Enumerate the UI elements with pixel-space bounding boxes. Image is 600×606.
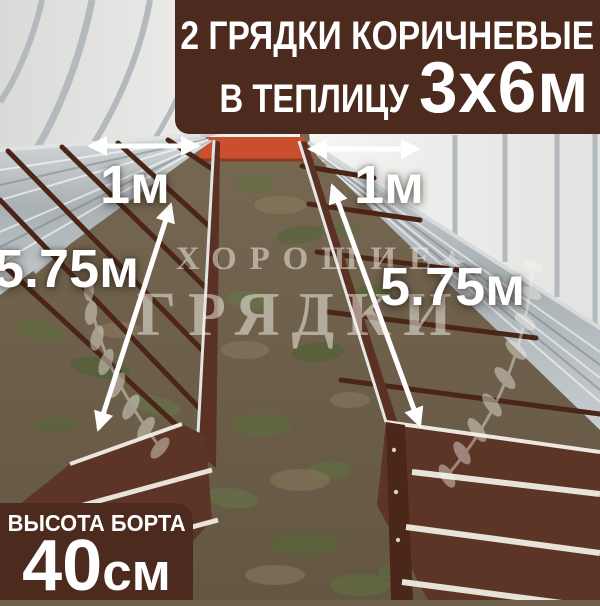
board-height-value-row: 40 см	[22, 534, 171, 603]
dimension-label-bed-length-right: 5.75м	[380, 260, 525, 314]
banner-subtitle-row: В ТЕПЛИЦУ 3х6м	[178, 54, 596, 122]
board-height-unit: см	[102, 542, 171, 603]
dimension-label-bed-length-left: 5.75м	[0, 242, 139, 296]
board-height-label: ВЫСОТА БОРТА	[8, 510, 186, 537]
right-bed-end-panel	[377, 422, 600, 600]
board-height-value: 40	[22, 534, 102, 599]
promo-banner: 2 ГРЯДКИ КОРИЧНЕВЫЕ В ТЕПЛИЦУ 3х6м	[175, 0, 600, 134]
dimension-label-bed-width-left: 1м	[100, 158, 170, 212]
banner-size-value: 3х6м	[419, 54, 589, 122]
banner-subtitle: В ТЕПЛИЦУ	[220, 77, 409, 122]
product-photo-card: ХОРОШИЕ ГРЯДКИ 1м 1м 5.75м 5.75м 2 ГРЯДК…	[0, 0, 600, 600]
board-height-badge: ВЫСОТА БОРТА 40 см	[0, 503, 193, 600]
dimension-label-bed-width-right: 1м	[354, 158, 424, 212]
